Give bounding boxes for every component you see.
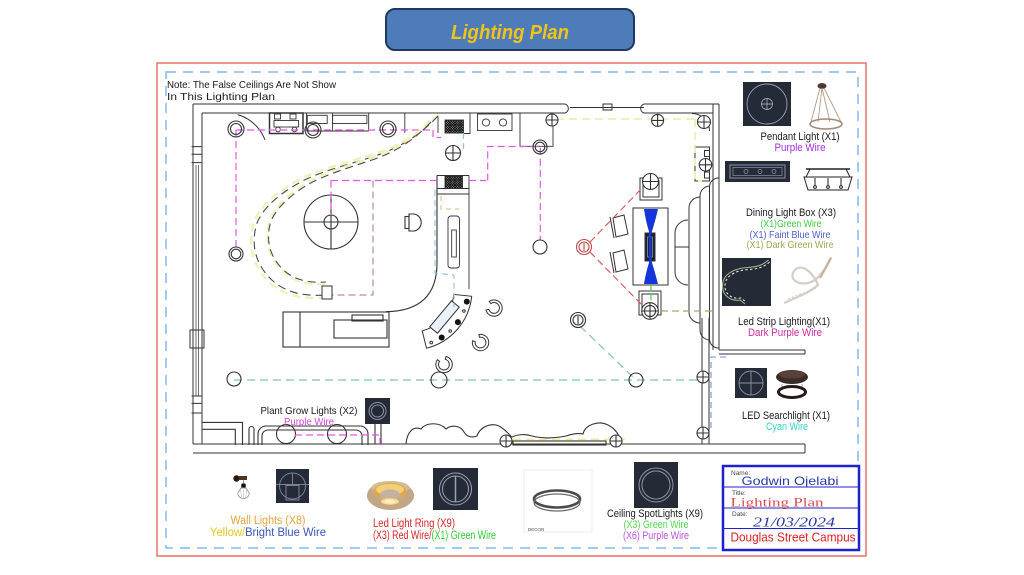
svg-text:DECOR: DECOR xyxy=(528,527,545,532)
svg-text:Dark Purple Wire: Dark Purple Wire xyxy=(748,327,822,339)
svg-text:Led Light Ring (X9): Led Light Ring (X9) xyxy=(373,518,455,530)
svg-text:Purple Wire: Purple Wire xyxy=(775,142,826,154)
svg-text:Purple Wire: Purple Wire xyxy=(284,416,334,428)
svg-text:Douglas Street Campus: Douglas Street Campus xyxy=(731,531,856,545)
svg-text:Lighting Plan: Lighting Plan xyxy=(731,495,825,510)
svg-text:(X3) Red Wire/(X1) Green Wire: (X3) Red Wire/(X1) Green Wire xyxy=(373,530,496,542)
svg-text:(X6) Purple Wire: (X6) Purple Wire xyxy=(623,530,689,542)
svg-text:Date:: Date: xyxy=(732,511,748,518)
svg-text:In This Lighting Plan: In This Lighting Plan xyxy=(167,91,275,103)
svg-text:Wall Lights (X8): Wall Lights (X8) xyxy=(231,515,306,527)
svg-text:21/03/2024: 21/03/2024 xyxy=(753,515,835,530)
svg-text:Yellow/Bright Blue Wire: Yellow/Bright Blue Wire xyxy=(210,527,326,539)
svg-text:(X1) Dark Green Wire: (X1) Dark Green Wire xyxy=(747,239,834,251)
svg-text:Cyan Wire: Cyan Wire xyxy=(766,421,808,433)
svg-text:Note: The False Ceilings Are N: Note: The False Ceilings Are Not Show xyxy=(167,79,336,91)
svg-text:Godwin Ojelabi: Godwin Ojelabi xyxy=(742,474,839,488)
